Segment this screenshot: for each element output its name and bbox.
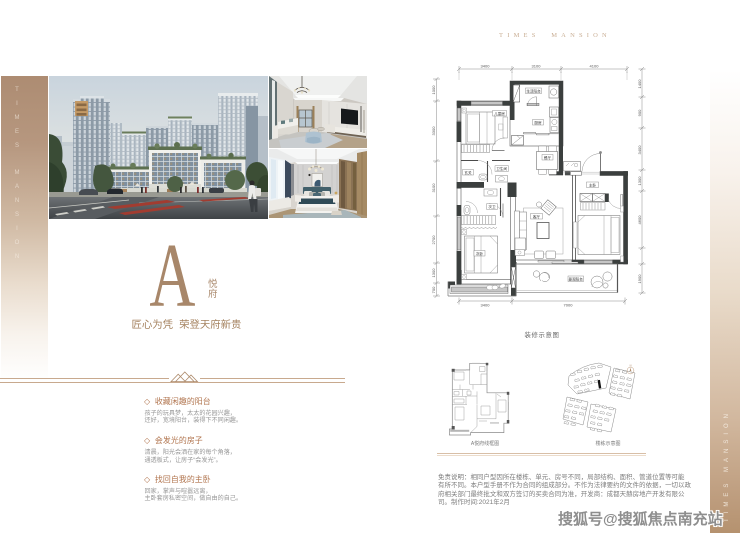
svg-text:景观阳台: 景观阳台 — [569, 276, 584, 281]
svg-text:厨房: 厨房 — [534, 120, 542, 125]
svg-text:次卧: 次卧 — [476, 251, 484, 256]
svg-text:次卫: 次卫 — [488, 204, 496, 209]
svg-text:1300: 1300 — [431, 268, 436, 278]
svg-text:2700: 2700 — [431, 235, 436, 245]
svg-text:N: N — [630, 364, 632, 368]
svg-text:1400: 1400 — [637, 79, 642, 89]
svg-text:主卧: 主卧 — [589, 182, 597, 187]
svg-text:1300: 1300 — [637, 176, 642, 186]
svg-text:3100: 3100 — [431, 183, 436, 193]
svg-text:1900: 1900 — [637, 274, 642, 284]
svg-text:3300: 3300 — [431, 126, 436, 136]
svg-text:3400: 3400 — [481, 303, 491, 308]
svg-text:卫生间: 卫生间 — [496, 166, 507, 171]
svg-text:7000: 7000 — [564, 303, 574, 308]
svg-text:3100: 3100 — [532, 64, 542, 69]
svg-text:生活阳台: 生活阳台 — [526, 88, 541, 93]
svg-text:4600: 4600 — [637, 215, 642, 225]
svg-text:儿童房: 儿童房 — [494, 111, 505, 116]
svg-text:餐厅: 餐厅 — [544, 155, 552, 160]
svg-text:3400: 3400 — [481, 64, 491, 69]
svg-text:4100: 4100 — [590, 64, 600, 69]
svg-text:玄关: 玄关 — [464, 170, 472, 175]
svg-text:1000: 1000 — [431, 85, 436, 95]
svg-text:客厅: 客厅 — [533, 214, 541, 219]
svg-text:700: 700 — [431, 286, 436, 293]
svg-text:3400: 3400 — [637, 145, 642, 155]
svg-text:900: 900 — [637, 109, 642, 116]
